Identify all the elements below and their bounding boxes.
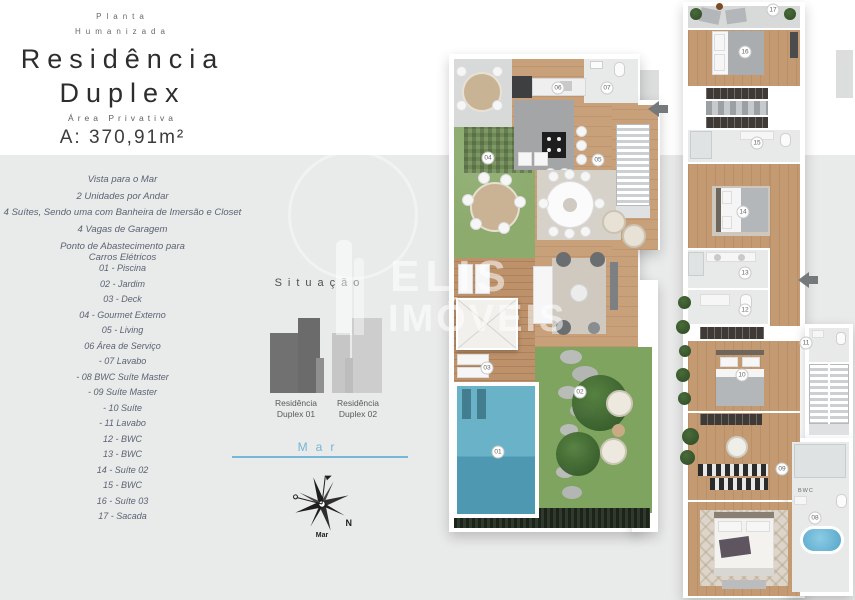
building-01-block-a <box>270 333 298 393</box>
planter <box>682 428 699 445</box>
legend-item: 03 - Deck <box>0 292 245 308</box>
dining-chair <box>548 171 559 182</box>
round-lounge-chair <box>600 438 627 465</box>
sink <box>590 61 603 69</box>
pillow <box>720 357 738 367</box>
cooktop-burner <box>557 137 561 141</box>
closet-shelf <box>700 414 762 425</box>
armchair <box>556 252 571 267</box>
bed-footer <box>714 568 774 576</box>
legend-item: - 10 Suíte <box>0 401 245 417</box>
basin <box>714 254 721 261</box>
gazebo <box>456 298 518 350</box>
staircase-lower <box>616 124 650 206</box>
closet-pouf <box>726 436 748 458</box>
pillow <box>722 216 732 229</box>
island-cabinet <box>534 152 548 166</box>
dining-chair <box>548 226 559 237</box>
bar-stool <box>576 126 587 137</box>
cooktop-burner <box>557 148 561 152</box>
shower <box>690 131 712 159</box>
building-01-block-c <box>316 358 324 393</box>
potted-plant <box>690 8 702 20</box>
planter <box>678 392 691 405</box>
legend-item: 15 - BWC <box>0 478 245 494</box>
feature-item: 4 Vagas de Garagem <box>0 222 245 239</box>
suite-10-headboard <box>716 350 764 355</box>
balcony-lounger <box>725 8 747 25</box>
hallway-rug <box>706 101 768 115</box>
garden-side-table <box>612 424 625 437</box>
feature-item: 4 Suítes, Sendo uma com Banheira de Imer… <box>0 205 245 222</box>
sea-direction-label: Mar <box>232 440 408 454</box>
pouf <box>588 322 600 334</box>
tv-panel <box>610 262 618 310</box>
gourmet-chair <box>514 196 526 208</box>
dining-chair <box>538 198 549 209</box>
toilet <box>614 62 625 77</box>
planter <box>678 296 691 309</box>
cooktop-burner <box>547 137 551 141</box>
toilet <box>836 332 846 345</box>
pillow <box>714 54 725 71</box>
compass-rose: N <box>290 472 354 536</box>
legend-item: 02 - Jardim <box>0 277 245 293</box>
toilet <box>780 133 791 147</box>
room-marker: 12 <box>739 304 752 317</box>
room-marker: 16 <box>739 46 752 59</box>
closet-shelf <box>710 478 768 490</box>
legend-item: 12 - BWC <box>0 432 245 448</box>
feature-list: Vista para o Mar2 Unidades por Andar4 Su… <box>0 172 245 263</box>
pool-step <box>462 389 471 419</box>
compass-north-label: N <box>346 518 353 528</box>
dining-chair <box>580 226 591 237</box>
pillow <box>718 521 742 532</box>
armchair <box>556 320 571 335</box>
eyebrow-line-1: Planta <box>0 12 245 21</box>
suite-03-sideboard <box>790 32 798 58</box>
room-marker: 07 <box>601 82 614 95</box>
basin <box>738 254 745 261</box>
gourmet-chair <box>478 172 490 184</box>
sink <box>794 496 807 505</box>
coffee-table <box>570 284 588 302</box>
legend-item: - 11 Lavabo <box>0 416 245 432</box>
room-marker: 09 <box>776 463 789 476</box>
legend-item: 13 - BWC <box>0 447 245 463</box>
legend-item: 17 - Sacada <box>0 509 245 525</box>
building-02-block-c <box>345 358 353 393</box>
watermark-arc <box>288 150 418 280</box>
island-cabinet <box>518 152 532 166</box>
closet-shelf <box>698 464 768 476</box>
feature-item: 2 Unidades por Andar <box>0 189 245 206</box>
gourmet-chair <box>500 174 512 186</box>
legend-item: - 07 Lavabo <box>0 354 245 370</box>
gourmet-chair <box>470 218 482 230</box>
area-label: Área Privativa <box>0 113 245 123</box>
feature-item: Ponto de Abastecimento para Carros Elétr… <box>0 238 245 263</box>
wardrobe <box>700 327 764 339</box>
legend-item: 04 - Gourmet Externo <box>0 308 245 324</box>
vanity <box>700 294 730 306</box>
stepping-stone <box>562 486 582 499</box>
dining-chair <box>564 228 575 239</box>
room-marker: 10 <box>736 369 749 382</box>
dining-chair <box>594 198 605 209</box>
pillow <box>742 357 760 367</box>
patio-chair <box>456 66 467 77</box>
room-marker: 13 <box>739 267 752 280</box>
pool-step <box>477 389 486 419</box>
wardrobe <box>706 117 768 128</box>
building-02-label: Residência Duplex 02 <box>322 398 394 420</box>
room-marker: 02 <box>574 386 587 399</box>
kitchen-counter-dark <box>512 76 532 98</box>
dining-centerpiece <box>563 198 577 212</box>
patio-chair <box>492 100 503 111</box>
legend-item: - 09 Suíte Master <box>0 385 245 401</box>
feature-item: Vista para o Mar <box>0 172 245 189</box>
legend-item: 16 - Suíte 03 <box>0 494 245 510</box>
eyebrow-line-2: Humanizada <box>0 27 245 36</box>
situacao-title: Situação <box>240 277 400 289</box>
planter <box>680 450 695 465</box>
stair-landing <box>809 424 849 435</box>
room-marker: 04 <box>482 152 495 165</box>
planter <box>676 368 690 382</box>
sea-direction-line <box>232 456 408 458</box>
room-marker: 11 <box>800 337 813 350</box>
room-marker: 03 <box>481 362 494 375</box>
gourmet-chair <box>498 222 510 234</box>
bar-stool <box>576 154 587 165</box>
immersion-bathtub <box>800 526 844 554</box>
shower <box>688 252 704 276</box>
shower <box>794 444 846 478</box>
sun-lounger <box>475 264 490 294</box>
room-marker: 08 <box>809 512 822 525</box>
bwc-room-text: BWC <box>798 488 814 494</box>
stair-divider <box>828 364 830 424</box>
exterior-ledge-2 <box>836 50 853 98</box>
dining-chair <box>580 171 591 182</box>
patio-chair <box>492 66 503 77</box>
round-lounge-chair <box>606 390 633 417</box>
planter <box>676 320 690 334</box>
pillow <box>722 191 732 204</box>
stepping-stone <box>560 350 582 364</box>
page-title-line-2: Duplex <box>0 78 245 109</box>
planter <box>679 345 691 357</box>
toilet <box>836 494 847 508</box>
corridor-floor <box>770 164 800 326</box>
gourmet-chair <box>462 194 474 206</box>
wardrobe <box>706 88 768 99</box>
pillow <box>714 34 725 51</box>
pillow <box>746 521 770 532</box>
room-legend-list: 01 - Piscina02 - Jardim03 - Deck04 - Gou… <box>0 261 245 525</box>
sun-lounger <box>458 264 473 294</box>
legend-item: 05 - Living <box>0 323 245 339</box>
sofa <box>533 266 553 324</box>
sink <box>812 330 824 338</box>
potted-plant <box>716 3 723 10</box>
legend-item: - 08 BWC Suíte Master <box>0 370 245 386</box>
room-marker: 05 <box>592 154 605 167</box>
potted-plant <box>784 8 796 20</box>
room-marker: 14 <box>737 206 750 219</box>
room-marker: 01 <box>492 446 505 459</box>
dining-chair <box>564 169 575 180</box>
room-marker: 06 <box>552 82 565 95</box>
compass-sea-caption: Mar <box>296 532 348 539</box>
tree <box>556 432 600 476</box>
building-02-block-b <box>352 318 382 393</box>
bar-stool <box>576 140 587 151</box>
legend-item: 14 - Suíte 02 <box>0 463 245 479</box>
entrance-arrow-lower <box>648 101 668 117</box>
armchair <box>590 252 605 267</box>
rattan-chair <box>622 224 646 248</box>
brochure-page: Planta Humanizada Residência Duplex Área… <box>0 0 855 600</box>
bed-bench <box>722 580 766 589</box>
legend-item: 06 Área de Serviço <box>0 339 245 355</box>
legend-item: 01 - Piscina <box>0 261 245 277</box>
page-title-line-1: Residência <box>0 44 245 75</box>
entrance-arrow-upper <box>798 272 818 288</box>
room-marker: 17 <box>767 4 780 17</box>
patio-chair <box>456 100 467 111</box>
room-marker: 15 <box>751 137 764 150</box>
area-value: A: 370,91m² <box>0 127 245 149</box>
